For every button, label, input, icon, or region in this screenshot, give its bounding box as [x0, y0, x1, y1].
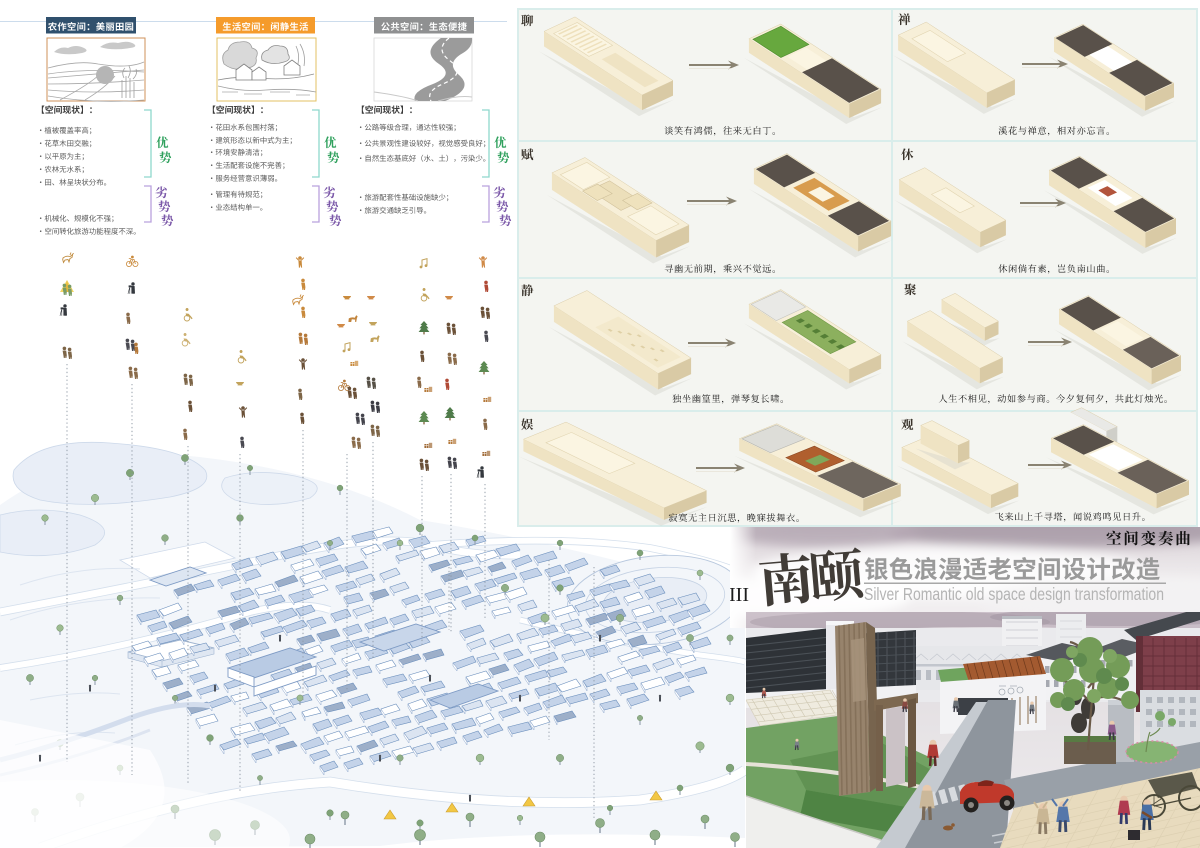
svg-text:Silver Romantic old space desi: Silver Romantic old space design transfo…: [864, 584, 1164, 604]
svg-text:III: III: [730, 584, 749, 606]
